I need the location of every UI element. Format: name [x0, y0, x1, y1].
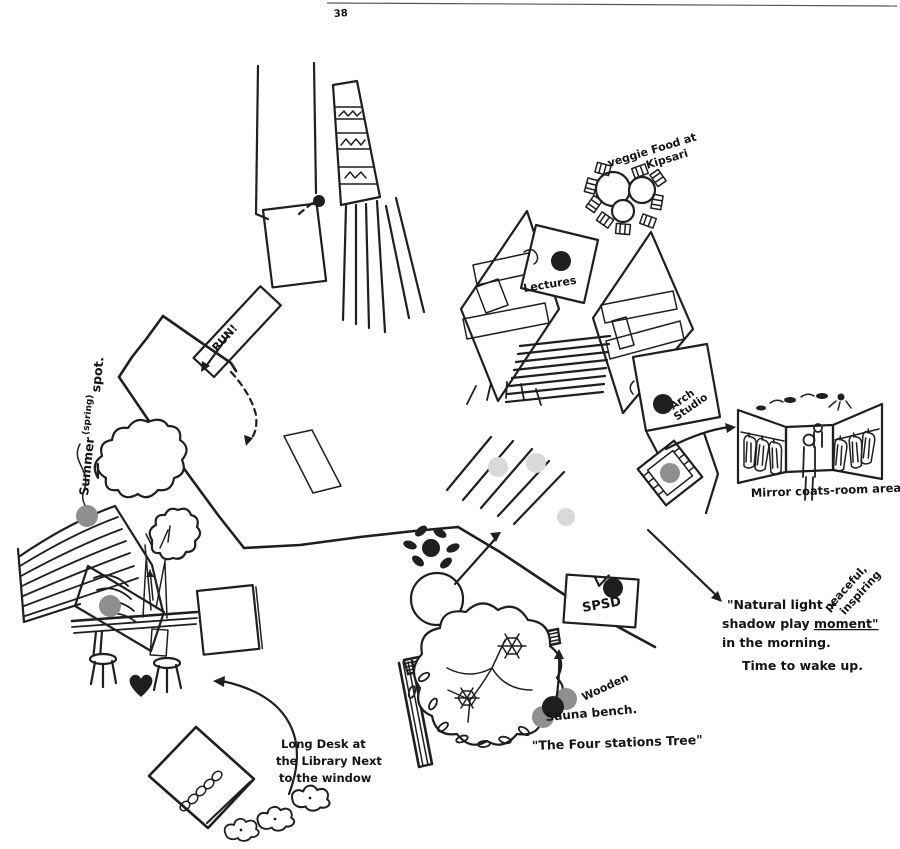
long-desk — [149, 727, 254, 828]
reading-box-dot — [99, 595, 121, 617]
dashed-route — [231, 202, 314, 441]
lectures-room: Lectures — [521, 225, 598, 303]
four-stations-tree: Wooden Sauna bench. "The Four stations T… — [399, 603, 703, 767]
escalator-tower — [333, 81, 424, 332]
arch-studio-room: ArchStudio — [630, 344, 720, 431]
natural-light-note: "Natural light + shadow play moment" in … — [648, 530, 884, 673]
label-tree-title: "The Four stations Tree" — [532, 732, 703, 753]
interior-staircase-band — [284, 430, 341, 493]
landing-dot — [656, 459, 684, 487]
label-wooden: Wooden — [580, 671, 631, 704]
page-edge-line — [327, 3, 897, 6]
label-long-desk-line1: Long Desk at — [281, 737, 366, 751]
leaf-cluster — [150, 509, 200, 559]
route-dot-marker — [313, 195, 325, 207]
light-dot — [488, 457, 508, 477]
page-number: 38 — [333, 8, 348, 20]
label-spring-note: (spring) — [81, 394, 95, 435]
light-dot — [526, 453, 546, 473]
leaf-cluster — [95, 420, 187, 497]
label-long-desk-line2: the Library Next — [276, 754, 382, 768]
dashed-route-arrowhead — [244, 435, 253, 446]
flower-center-dot — [422, 539, 440, 557]
sketchbook-page: 38 RUN! — [0, 0, 900, 849]
light-dot — [557, 508, 575, 526]
spsd-room: SPSD — [563, 573, 638, 628]
zigzag-escalator — [339, 111, 361, 116]
lectures-dot — [551, 251, 571, 271]
label-natural-line3: in the morning. — [722, 635, 831, 650]
amphitheatre-dot — [76, 505, 98, 527]
corridor — [256, 63, 316, 219]
upper-stairs-grid — [263, 203, 326, 287]
stair-landing-box — [638, 433, 718, 513]
label-mood: peaceful,inspiring — [822, 559, 884, 624]
label-run: RUN! — [210, 322, 241, 354]
label-mirror-caption: Mirror coats-room area — [751, 481, 900, 500]
label-long-desk-line3: to the window — [279, 771, 372, 785]
sketch-map: 38 RUN! — [0, 0, 900, 849]
label-spot: spot. — [88, 356, 107, 393]
heart-icon — [130, 675, 153, 697]
ceiling-lights — [756, 393, 851, 411]
mirror-coatroom-sketch: Mirror coats-room area — [738, 393, 900, 500]
middle-stairs — [506, 336, 610, 402]
label-shadow-play: shadow play — [722, 616, 814, 631]
label-natural-line2: shadow play moment" — [722, 616, 879, 631]
light-rays — [447, 382, 575, 526]
kipsari-table: veggie Food atKipsari — [584, 131, 701, 235]
label-natural-line4: Time to wake up. — [742, 658, 863, 673]
bookshelf — [197, 585, 262, 655]
kipsari-chairs — [584, 162, 666, 234]
label-moment-underlined: moment" — [814, 616, 879, 631]
library-area: Summer(spring)spot. — [18, 356, 382, 841]
